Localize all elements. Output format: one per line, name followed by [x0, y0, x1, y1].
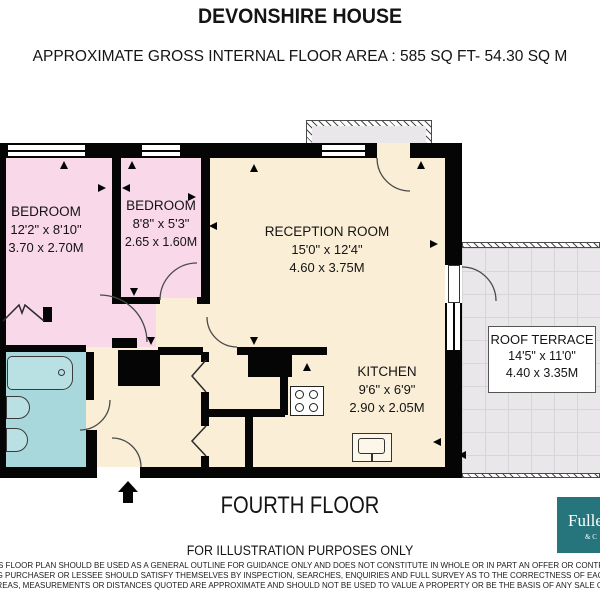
room-label-kitchen: KITCHEN 9'6" x 6'9" 2.90 x 2.05M	[327, 363, 447, 417]
wall	[86, 430, 97, 467]
wall	[180, 143, 322, 158]
hob-ring	[295, 390, 304, 399]
room-dims-imperial: 8'8" x 5'3"	[121, 215, 201, 233]
room-dims-metric: 3.70 x 2.70M	[4, 239, 88, 257]
wall	[201, 352, 209, 362]
window	[445, 303, 462, 350]
wall	[112, 297, 160, 304]
room-dims-imperial: 15'0" x 12'4"	[247, 241, 407, 259]
kitchen-sink	[352, 433, 392, 462]
agency-logo: Fulle & C	[557, 497, 600, 553]
wall	[410, 143, 446, 158]
room-name: RECEPTION ROOM	[247, 223, 407, 241]
room-name: BEDROOM	[121, 197, 201, 215]
wall	[86, 352, 94, 400]
floorplan-page: DEVONSHIRE HOUSE APPROXIMATE GROSS INTER…	[0, 0, 600, 600]
hob-ring	[309, 403, 318, 412]
terrace-bottom-edge	[462, 473, 600, 478]
bathtub	[7, 356, 73, 390]
wall	[203, 409, 285, 417]
measure-arrow-icon	[250, 337, 258, 345]
wall	[197, 297, 210, 304]
room-dims-metric: 2.65 x 1.60M	[121, 233, 201, 251]
wall	[0, 467, 97, 478]
wall	[118, 350, 160, 386]
wall	[112, 158, 121, 304]
measure-arrow-icon	[433, 438, 441, 446]
hob-ring	[295, 403, 304, 412]
window	[8, 143, 85, 158]
wall	[245, 417, 253, 467]
measure-arrow-icon	[303, 363, 311, 371]
kitchen-sink-bowl	[358, 438, 385, 454]
wall	[158, 347, 203, 355]
measure-arrow-icon	[430, 240, 438, 248]
bath-drain	[58, 369, 65, 376]
agency-logo-subtext: & C	[585, 533, 597, 541]
disclaimer-line: NG PURCHASER OR LESSEE SHOULD SATISFY TH…	[0, 571, 600, 581]
measure-arrow-icon	[128, 161, 136, 169]
wall	[140, 467, 462, 478]
room-dims-metric: 4.60 x 3.75M	[247, 259, 407, 277]
hob	[290, 386, 324, 416]
agency-logo-text: Fulle	[568, 511, 600, 531]
measure-arrow-icon	[60, 161, 68, 169]
wall	[85, 143, 142, 158]
wall	[201, 456, 209, 467]
illustration-note: FOR ILLUSTRATION PURPOSES ONLY	[24, 542, 576, 560]
disclaimer-line: AREAS, MEASUREMENTS OR DISTANCES QUOTED …	[0, 581, 600, 591]
measure-arrow-icon	[250, 164, 258, 172]
measure-arrow-icon	[147, 337, 155, 345]
wall	[43, 307, 52, 322]
measure-arrow-icon	[458, 451, 466, 459]
measure-arrow-icon	[122, 184, 130, 192]
floor-label: FOURTH FLOOR	[48, 497, 552, 515]
measure-arrow-icon	[209, 222, 217, 230]
balcony-doorway	[377, 143, 410, 158]
wall	[365, 143, 377, 158]
wall	[201, 158, 210, 304]
hob-ring	[309, 390, 318, 399]
measure-arrow-icon	[130, 288, 138, 296]
room-label-roof-terrace: ROOF TERRACE 14'5" x 11'0" 4.40 x 3.35M	[488, 326, 596, 393]
room-dims-metric: 4.40 x 3.35M	[489, 365, 595, 382]
room-label-reception: RECEPTION ROOM 15'0" x 12'4" 4.60 x 3.75…	[247, 223, 407, 277]
room-dims-metric: 2.90 x 2.05M	[327, 399, 447, 417]
terrace-door-leaf	[448, 265, 460, 303]
kitchen-sink-tap	[371, 454, 373, 462]
window	[142, 143, 180, 158]
room-label-bedroom-1: BEDROOM 12'2" x 8'10" 3.70 x 2.70M	[4, 203, 88, 257]
wall	[280, 353, 288, 415]
room-name: BEDROOM	[4, 203, 88, 221]
room-dims-imperial: 12'2" x 8'10"	[4, 221, 88, 239]
room-dims-imperial: 9'6" x 6'9"	[327, 381, 447, 399]
disclaimer-line: HIS FLOOR PLAN SHOULD BE USED AS A GENER…	[0, 561, 600, 571]
room-label-bedroom-2: BEDROOM 8'8" x 5'3" 2.65 x 1.60M	[121, 197, 201, 251]
room-name: ROOF TERRACE	[489, 331, 595, 348]
wall	[112, 338, 137, 348]
measure-arrow-icon	[417, 161, 425, 169]
wall	[0, 345, 86, 352]
room-dims-imperial: 14'5" x 11'0"	[489, 348, 595, 365]
basin	[6, 396, 30, 419]
window	[322, 143, 365, 158]
room-name: KITCHEN	[327, 363, 447, 381]
measure-arrow-icon	[98, 184, 106, 192]
wall	[445, 143, 462, 265]
